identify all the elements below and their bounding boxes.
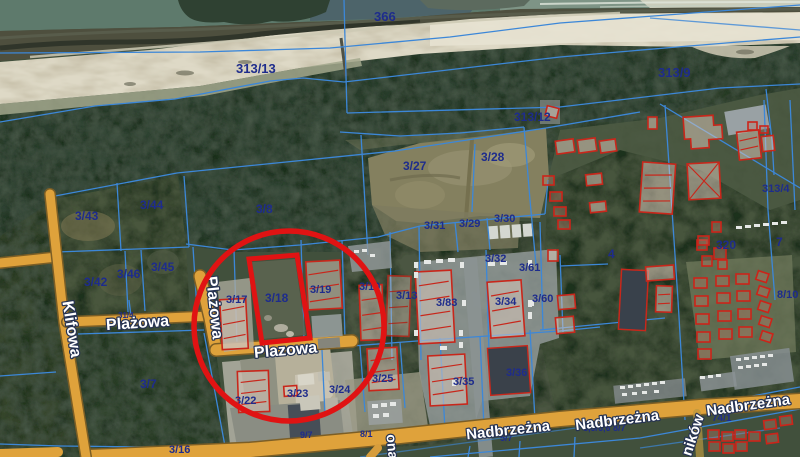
svg-text:9/7: 9/7 xyxy=(300,430,313,440)
svg-text:3/61: 3/61 xyxy=(519,262,540,274)
svg-text:3/36: 3/36 xyxy=(506,367,527,379)
svg-text:3/28: 3/28 xyxy=(481,150,505,164)
svg-text:313/12: 313/12 xyxy=(514,110,551,124)
svg-text:3/42: 3/42 xyxy=(84,275,108,289)
svg-text:313/9: 313/9 xyxy=(658,65,691,80)
svg-text:8/10: 8/10 xyxy=(777,289,798,301)
svg-text:3/7: 3/7 xyxy=(140,377,157,391)
svg-text:3/45: 3/45 xyxy=(151,260,175,274)
svg-text:366: 366 xyxy=(374,9,396,24)
svg-text:3/16: 3/16 xyxy=(169,444,190,456)
svg-text:3/17: 3/17 xyxy=(226,294,247,306)
svg-text:7: 7 xyxy=(776,235,783,249)
svg-text:ona: ona xyxy=(384,434,402,457)
svg-text:3/27: 3/27 xyxy=(403,159,427,173)
svg-text:3/30: 3/30 xyxy=(494,213,515,225)
svg-text:3/23: 3/23 xyxy=(287,388,308,400)
svg-text:8/1: 8/1 xyxy=(360,429,373,439)
svg-text:320: 320 xyxy=(716,238,736,252)
svg-text:3/34: 3/34 xyxy=(495,296,517,308)
svg-text:3/43: 3/43 xyxy=(75,209,99,223)
svg-text:3/60: 3/60 xyxy=(532,293,553,305)
svg-text:4: 4 xyxy=(608,247,615,261)
svg-text:3/32: 3/32 xyxy=(485,253,506,265)
svg-text:3/44: 3/44 xyxy=(140,198,164,212)
svg-text:3/29: 3/29 xyxy=(459,218,480,230)
svg-text:313/13: 313/13 xyxy=(236,61,276,76)
svg-text:3/19: 3/19 xyxy=(310,284,331,296)
svg-text:3/13: 3/13 xyxy=(396,290,417,302)
svg-text:3/31: 3/31 xyxy=(424,220,445,232)
svg-text:313/4: 313/4 xyxy=(762,183,790,195)
svg-text:3/24: 3/24 xyxy=(329,384,351,396)
svg-text:3/18: 3/18 xyxy=(265,291,289,305)
svg-text:3/83: 3/83 xyxy=(436,297,457,309)
svg-text:3/35: 3/35 xyxy=(453,376,474,388)
svg-text:3/25: 3/25 xyxy=(372,373,393,385)
svg-text:3/46: 3/46 xyxy=(117,267,141,281)
svg-text:3/8: 3/8 xyxy=(256,202,273,216)
